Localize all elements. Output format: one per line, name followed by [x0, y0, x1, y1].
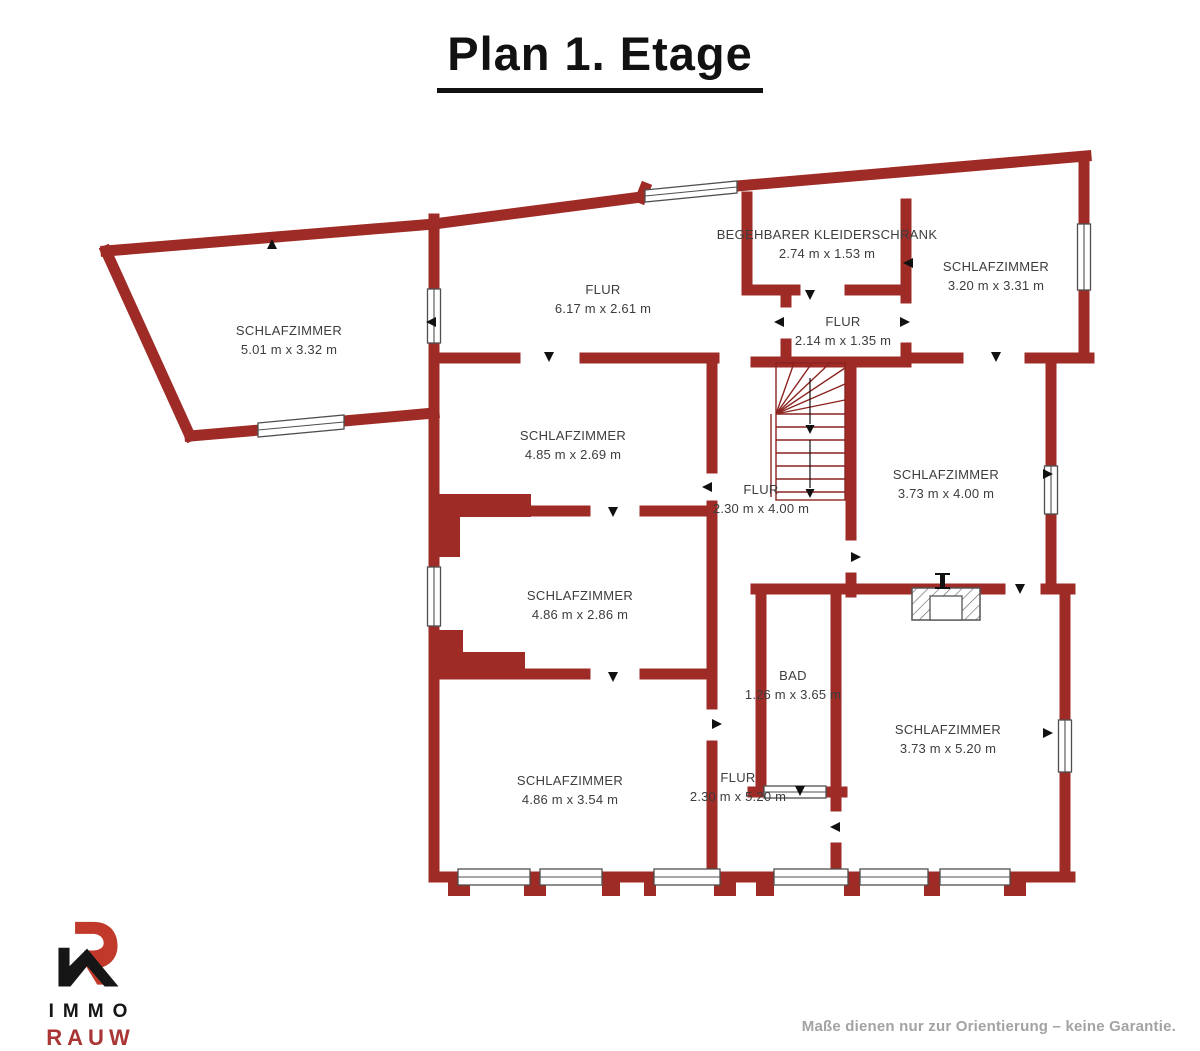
door-arrow [712, 719, 722, 729]
room-dims: 2.14 m x 1.35 m [795, 332, 891, 351]
room-label-bad: BAD 1.26 m x 3.65 m [745, 667, 841, 705]
door-arrow [1015, 584, 1025, 594]
door-arrow [608, 672, 618, 682]
room-dims: 3.20 m x 3.31 m [943, 277, 1049, 296]
room-dims: 4.86 m x 2.86 m [527, 606, 633, 625]
room-dims: 4.85 m x 2.69 m [520, 446, 626, 465]
room-name: BEGEHBARER KLEIDERSCHRANK [717, 226, 938, 245]
room-label-schlafzimmer-mid2: SCHLAFZIMMER 4.86 m x 2.86 m [527, 587, 633, 625]
door-arrow [774, 317, 784, 327]
staircase [771, 363, 845, 500]
floor-plan-page: Plan 1. Etage [0, 0, 1200, 1050]
room-dims: 2.30 m x 5.20 m [690, 788, 786, 807]
room-label-schlafzimmer-east: SCHLAFZIMMER 3.73 m x 4.00 m [893, 466, 999, 504]
chimney-symbol [912, 573, 980, 620]
door-arrow [991, 352, 1001, 362]
stair-direction-arrow [806, 425, 815, 434]
room-name: FLUR [690, 769, 786, 788]
company-logo: IMMO RAUW [38, 920, 138, 1051]
room-label-schlafzimmer-ne: SCHLAFZIMMER 3.20 m x 3.31 m [943, 258, 1049, 296]
room-name: SCHLAFZIMMER [895, 721, 1001, 740]
disclaimer-text: Maße dienen nur zur Orientierung – keine… [802, 1018, 1176, 1035]
logo-text-rauw: RAUW [38, 1025, 138, 1051]
room-dims: 2.74 m x 1.53 m [717, 245, 938, 264]
room-name: FLUR [713, 481, 809, 500]
room-dims: 5.01 m x 3.32 m [236, 341, 342, 360]
room-label-kleiderschrank: BEGEHBARER KLEIDERSCHRANK 2.74 m x 1.53 … [717, 226, 938, 264]
room-label-flur-small: FLUR 2.14 m x 1.35 m [795, 313, 891, 351]
logo-text-immo: IMMO [38, 1001, 138, 1023]
door-arrow [544, 352, 554, 362]
door-arrow [900, 317, 910, 327]
room-label-flur-bottom: FLUR 2.30 m x 5.20 m [690, 769, 786, 807]
room-label-schlafzimmer-nw: SCHLAFZIMMER 5.01 m x 3.32 m [236, 322, 342, 360]
door-arrow [608, 507, 618, 517]
room-dims: 4.86 m x 3.54 m [517, 791, 623, 810]
room-name: FLUR [555, 281, 651, 300]
room-label-flur-top: FLUR 6.17 m x 2.61 m [555, 281, 651, 319]
room-name: SCHLAFZIMMER [520, 427, 626, 446]
room-label-schlafzimmer-sw: SCHLAFZIMMER 4.86 m x 3.54 m [517, 772, 623, 810]
room-label-schlafzimmer-se: SCHLAFZIMMER 3.73 m x 5.20 m [895, 721, 1001, 759]
door-arrow [830, 822, 840, 832]
room-name: SCHLAFZIMMER [943, 258, 1049, 277]
logo-mark-icon [51, 920, 125, 992]
room-dims: 6.17 m x 2.61 m [555, 300, 651, 319]
room-dims: 1.26 m x 3.65 m [745, 686, 841, 705]
door-arrow [702, 482, 712, 492]
door-arrow [1043, 728, 1053, 738]
room-name: SCHLAFZIMMER [236, 322, 342, 341]
room-dims: 2.30 m x 4.00 m [713, 500, 809, 519]
room-dims: 3.73 m x 5.20 m [895, 740, 1001, 759]
room-label-schlafzimmer-mid1: SCHLAFZIMMER 4.85 m x 2.69 m [520, 427, 626, 465]
room-label-flur-stairs: FLUR 2.30 m x 4.00 m [713, 481, 809, 519]
wall-marker [940, 573, 945, 589]
room-name: SCHLAFZIMMER [517, 772, 623, 791]
room-dims: 3.73 m x 4.00 m [893, 485, 999, 504]
room-name: SCHLAFZIMMER [527, 587, 633, 606]
room-name: FLUR [795, 313, 891, 332]
room-name: SCHLAFZIMMER [893, 466, 999, 485]
floor-plan-drawing [0, 0, 1200, 1050]
room-name: BAD [745, 667, 841, 686]
door-arrow [851, 552, 861, 562]
door-arrow [805, 290, 815, 300]
